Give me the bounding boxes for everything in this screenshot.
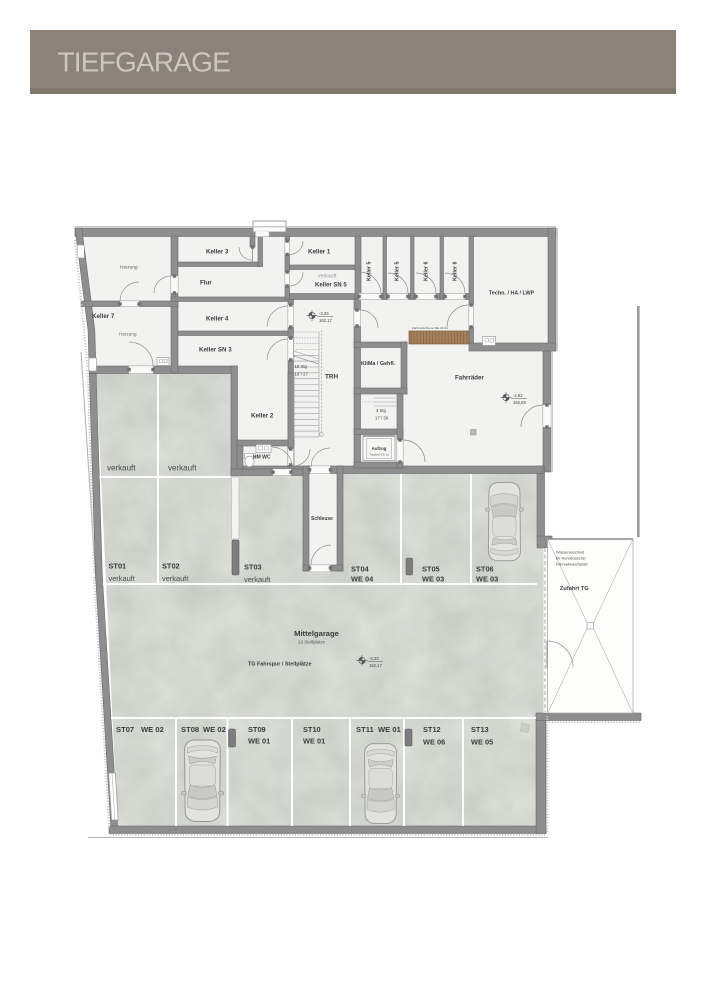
svg-text:WE 05: WE 05 xyxy=(471,738,493,747)
svg-text:WE 04: WE 04 xyxy=(351,575,374,584)
svg-text:WE 01: WE 01 xyxy=(303,737,325,746)
svg-text:ST06: ST06 xyxy=(476,565,494,574)
svg-text:ST03: ST03 xyxy=(244,563,262,572)
svg-text:Keller 2: Keller 2 xyxy=(251,413,274,420)
svg-text:ST13: ST13 xyxy=(471,725,489,734)
svg-text:Flur: Flur xyxy=(200,280,212,287)
svg-text:Keller 5: Keller 5 xyxy=(395,262,401,281)
svg-text:Zufahrt TG: Zufahrt TG xyxy=(560,586,589,592)
svg-text:ST07: ST07 xyxy=(116,725,134,734)
svg-text:18´/ 27: 18´/ 27 xyxy=(295,372,309,377)
svg-text:ST09: ST09 xyxy=(248,725,266,734)
svg-text:verkauft: verkauft xyxy=(109,574,135,583)
svg-text:WE 01: WE 01 xyxy=(378,725,402,734)
svg-text:TIEFGARAGE: TIEFGARAGE xyxy=(58,47,231,78)
svg-text:Keller 6: Keller 6 xyxy=(453,262,459,281)
svg-text:Keller SN 5: Keller SN 5 xyxy=(315,283,347,289)
svg-text:Keller 3: Keller 3 xyxy=(206,249,229,256)
svg-text:Keller 5: Keller 5 xyxy=(367,262,373,281)
svg-text:WE 01: WE 01 xyxy=(248,737,270,746)
svg-text:ST08: ST08 xyxy=(181,725,199,734)
svg-text:ST02: ST02 xyxy=(162,562,180,571)
svg-text:HM WC: HM WC xyxy=(253,455,271,461)
svg-text:Keller 6: Keller 6 xyxy=(424,262,430,281)
svg-text:-2,82: -2,82 xyxy=(513,393,523,398)
svg-text:Techn. / HA / LWP: Techn. / HA / LWP xyxy=(489,291,535,297)
svg-text:162,69: 162,69 xyxy=(513,400,526,405)
svg-text:Heizung: Heizung xyxy=(120,265,138,271)
svg-text:Keller SN 3: Keller SN 3 xyxy=(199,347,232,354)
svg-text:verkauft: verkauft xyxy=(168,464,197,473)
svg-text:ST11: ST11 xyxy=(356,725,375,734)
svg-text:TRH: TRH xyxy=(325,374,339,381)
svg-text:Fahrradwaschplatz: Fahrradwaschplatz xyxy=(556,563,588,567)
svg-text:Wasseranschluß: Wasseranschluß xyxy=(556,551,585,555)
svg-text:Fahrräder: Fahrräder xyxy=(455,375,484,382)
svg-text:TG Fahrspur / Stellplätze: TG Fahrspur / Stellplätze xyxy=(248,662,312,668)
svg-text:Schleuse: Schleuse xyxy=(311,516,333,522)
svg-text:WE 02: WE 02 xyxy=(141,725,164,734)
svg-text:-3,33: -3,33 xyxy=(369,656,379,661)
svg-text:WE 03: WE 03 xyxy=(476,575,498,584)
svg-text:Tragkraft 630 kg: Tragkraft 630 kg xyxy=(369,453,389,457)
svg-text:Fahrradschiene WE 21.61: Fahrradschiene WE 21.61 xyxy=(412,326,448,330)
svg-text:ST10: ST10 xyxy=(303,725,321,734)
svg-text:verkauft: verkauft xyxy=(107,464,136,473)
svg-text:ST12: ST12 xyxy=(423,725,441,734)
svg-text:-3,33: -3,33 xyxy=(319,311,329,316)
svg-text:WE 02: WE 02 xyxy=(203,725,226,734)
svg-text:18 Stg: 18 Stg xyxy=(295,364,308,369)
svg-text:13 Stellplätze: 13 Stellplätze xyxy=(298,640,326,645)
svg-text:ST05: ST05 xyxy=(422,565,440,574)
svg-text:verkauft: verkauft xyxy=(318,274,337,280)
svg-text:Keller 4: Keller 4 xyxy=(206,316,229,323)
svg-text:Keller 1: Keller 1 xyxy=(308,249,331,256)
svg-text:KliMa / Gehfl.: KliMa / Gehfl. xyxy=(361,361,396,367)
svg-text:Mittelgarage: Mittelgarage xyxy=(294,629,339,638)
svg-text:verkauft: verkauft xyxy=(244,575,270,584)
svg-text:162,17: 162,17 xyxy=(369,663,382,668)
svg-text:Heizung: Heizung xyxy=(119,332,137,338)
svg-text:verkauft: verkauft xyxy=(162,574,188,583)
svg-text:17´/ 30: 17´/ 30 xyxy=(375,416,389,421)
svg-text:WE 03: WE 03 xyxy=(422,575,444,584)
svg-text:Aufzug: Aufzug xyxy=(372,446,387,451)
svg-text:162,17: 162,17 xyxy=(319,318,332,323)
svg-text:WE 06: WE 06 xyxy=(423,738,445,747)
svg-text:3 Stg: 3 Stg xyxy=(376,408,386,413)
svg-text:für Hundedusche/: für Hundedusche/ xyxy=(556,557,587,561)
svg-text:ST04: ST04 xyxy=(351,565,370,574)
svg-text:Keller 7: Keller 7 xyxy=(92,313,115,320)
svg-text:ST01: ST01 xyxy=(109,562,127,571)
